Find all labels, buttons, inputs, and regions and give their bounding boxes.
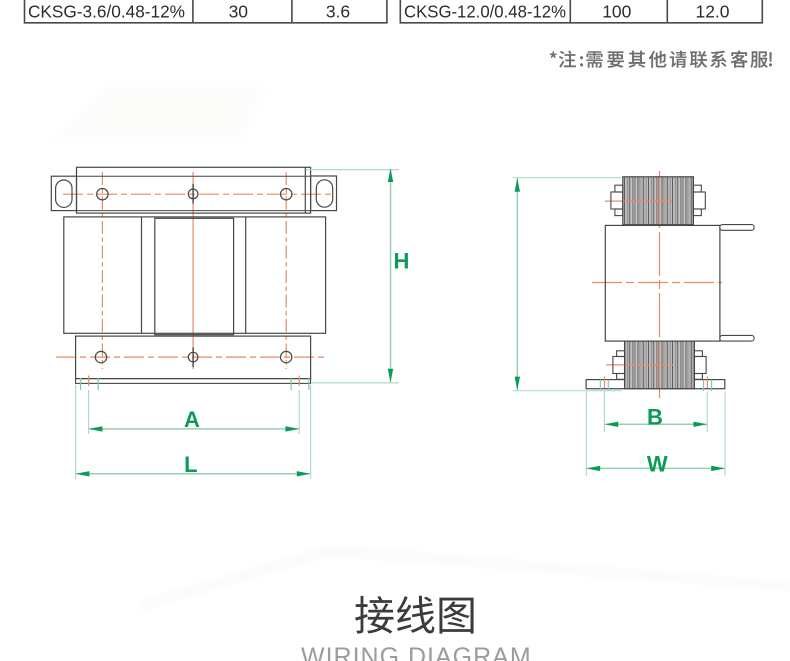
svg-text:12.0: 12.0 xyxy=(695,2,729,22)
svg-text:30: 30 xyxy=(229,2,249,22)
svg-text:H: H xyxy=(394,249,410,274)
svg-text:CKSG-3.6/0.48-12%: CKSG-3.6/0.48-12% xyxy=(28,2,185,22)
svg-text:CKSG-12.0/0.48-12%: CKSG-12.0/0.48-12% xyxy=(404,2,566,22)
svg-text:3.6: 3.6 xyxy=(326,2,350,22)
svg-text:W: W xyxy=(647,452,668,477)
svg-text:WIRING DIAGRAM: WIRING DIAGRAM xyxy=(301,643,532,661)
svg-text:A: A xyxy=(184,407,200,432)
svg-text:100: 100 xyxy=(602,2,631,22)
svg-text:L: L xyxy=(184,452,197,477)
svg-text:B: B xyxy=(647,405,663,430)
